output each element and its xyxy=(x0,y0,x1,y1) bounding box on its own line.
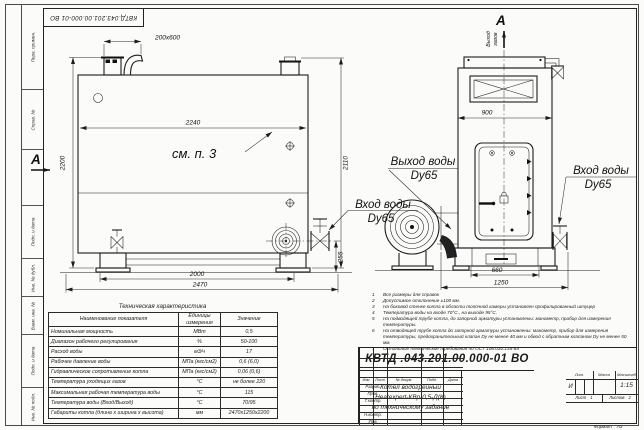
note-text: На подводящей трубе котла, до запорной а… xyxy=(383,316,635,328)
dim-height-left: 2200 xyxy=(60,155,67,171)
tb-row-utv: Утв. xyxy=(359,419,387,426)
flue-outlet-stub xyxy=(101,55,143,75)
tb-sheet-label: Лист xyxy=(575,396,586,400)
tech-value: 115 xyxy=(221,388,278,398)
see-note-ref: см. п. 3 xyxy=(172,146,217,161)
tech-value: 70/95 xyxy=(221,398,278,408)
note-item: 6На отводящей трубе котла до запорной ар… xyxy=(372,328,635,346)
tech-unit: % xyxy=(179,337,221,347)
front-view: A Выход газов xyxy=(375,13,600,271)
tech-unit: МВт xyxy=(179,327,221,337)
tech-value: 17 xyxy=(221,347,278,357)
tech-unit: МПа (кгс/см2) xyxy=(179,357,221,367)
tech-value: не более 220 xyxy=(221,377,278,387)
dim-height-right: 2110 xyxy=(343,156,350,171)
tb-sheets-value: 2 xyxy=(628,396,630,400)
note-number: 6 xyxy=(372,328,383,346)
tb-col-docnum: № докум. xyxy=(387,377,421,384)
tb-col-izm: Изм xyxy=(359,377,373,384)
front-inlet-dn: Dy65 xyxy=(585,179,612,191)
tb-scale-label: Масштаб xyxy=(615,371,638,379)
door-handle xyxy=(479,202,495,205)
tech-param: Гидравлическое сопротивление котла xyxy=(49,367,179,377)
tb-sheet-value: 1 xyxy=(590,396,592,400)
dim-base-inner: 2000 xyxy=(189,271,205,278)
tb-sheets: Листов 2 xyxy=(602,394,638,402)
drawing-sheet: Перв. примен. Справ. № Подп. и дата Инв.… xyxy=(0,0,644,430)
tb-col-podp: Подп. xyxy=(421,377,443,384)
notes-list: 1Все размеры для справок 2Допустимое отк… xyxy=(372,292,635,352)
title-block: Изм Лист № докум. Подп. Дата Разраб. Про… xyxy=(358,347,637,424)
tb-lit-value: И xyxy=(566,379,575,394)
gas-outlet-label-1: Выход xyxy=(486,31,492,47)
tb-scale-value: 1:15 xyxy=(615,379,638,394)
tech-row: Гидравлическое сопротивление котлаМПа (к… xyxy=(49,367,278,377)
tech-table: Наименование показателя Единицы измерени… xyxy=(48,312,278,419)
tech-characteristics: Техническая характеристика Наименование … xyxy=(48,303,277,419)
tech-row: Расход водым3/ч17 xyxy=(49,347,278,357)
tb-col-data: Дата xyxy=(443,377,463,384)
tb-lit-label: Лит. xyxy=(566,371,593,379)
rotated-doc-number: КВТД.043.201.00.000-01 ВО xyxy=(50,14,137,21)
tech-param: Диапазон рабочего регулирования xyxy=(49,337,179,347)
rotated-doc-number-stamp: КВТД.043.201.00.000-01 ВО xyxy=(43,8,144,27)
tech-header: Значение xyxy=(221,313,278,327)
side-inlet-valve xyxy=(553,226,567,250)
tech-param: Габариты котла (длина х ширина х высота) xyxy=(49,408,179,418)
tech-row: Температура уходящих газов°Сне более 220 xyxy=(49,377,278,387)
tech-row: Номинальная мощностьМВт0,5 xyxy=(49,327,278,337)
front-inlet-label: Вход воды xyxy=(573,165,629,177)
tech-value: 0,5 xyxy=(221,327,278,337)
tech-param: Расход воды xyxy=(49,347,179,357)
top-right-stub xyxy=(279,57,301,75)
water-outlet-dn: Dy65 xyxy=(411,170,438,182)
tech-value: 0,6 (6,0) xyxy=(221,357,278,367)
tech-row: Габариты котла (длина х ширина х высота)… xyxy=(49,408,278,418)
tech-header: Наименование показателя xyxy=(49,313,179,327)
drain-valve xyxy=(111,230,123,253)
tb-row-razrab: Разраб. xyxy=(359,384,387,391)
tech-unit: °С xyxy=(179,398,221,408)
tb-sheets-label: Листов xyxy=(609,396,624,400)
tech-param: Температура уходящих газов xyxy=(49,377,179,387)
format-label: Формат А3 xyxy=(578,424,638,429)
side-view xyxy=(60,55,352,272)
tech-row: Температура воды (Вход/Выход)°С70/95 xyxy=(49,398,278,408)
tech-param: Номинальная мощность xyxy=(49,327,179,337)
tb-row-tkontr: Т.контр. xyxy=(359,398,387,405)
tech-value: 0,06 (0,6) xyxy=(221,367,278,377)
tech-row: Диапазон рабочего регулирования%50-100 xyxy=(49,337,278,347)
explosion-hatch xyxy=(470,76,537,102)
tech-unit: м3/ч xyxy=(179,347,221,357)
tech-unit: МПа (кгс/см2) xyxy=(179,367,221,377)
tech-value: 50-100 xyxy=(221,337,278,347)
section-label-top: A xyxy=(495,13,506,28)
water-inlet-label: Вход воды xyxy=(355,199,411,211)
note-number: 5 xyxy=(372,316,383,328)
tech-param: Рабочее давление воды xyxy=(49,357,179,367)
tech-unit: °С xyxy=(179,377,221,387)
tech-header-row: Наименование показателя Единицы измерени… xyxy=(49,313,278,327)
note-item: 5На подводящей трубе котла, до запорной … xyxy=(372,316,635,328)
dim-inlet-height: 255 xyxy=(338,251,345,263)
tech-param: Максимальная рабочая температура воды xyxy=(49,388,179,398)
tech-table-title: Техническая характеристика xyxy=(48,303,277,310)
tb-row-prov: Пров. xyxy=(359,391,387,398)
note-text: На отводящей трубе котла до запорной арм… xyxy=(383,328,635,346)
tech-value: 2470х1250х2200 xyxy=(221,408,278,418)
section-label-left: A xyxy=(30,152,41,167)
base-frame xyxy=(375,248,600,271)
gas-outlet-label-2: газов xyxy=(493,32,499,46)
tech-unit: °С xyxy=(179,388,221,398)
tech-row: Максимальная рабочая температура воды°С1… xyxy=(49,388,278,398)
support-legs xyxy=(60,253,352,273)
tech-header: Единицы измерения xyxy=(179,313,221,327)
tech-unit: мм xyxy=(179,408,221,418)
format-word: Формат xyxy=(594,424,612,429)
top-outlet-pipe-valve xyxy=(545,59,564,80)
dim-front-base-inner: 660 xyxy=(492,267,503,274)
tb-col-list: Лист xyxy=(373,377,387,384)
dim-front-width: 900 xyxy=(482,110,493,117)
tb-sheet: Лист 1 xyxy=(566,394,602,402)
front-view-dimensions: 900 660 1250 Вход воды Dy65 xyxy=(441,110,636,291)
format-size: А3 xyxy=(617,424,623,429)
dim-width-inner: 2240 xyxy=(185,120,201,127)
tb-mass-label: Масса xyxy=(593,371,615,379)
tech-param: Температура воды (Вход/Выход) xyxy=(49,398,179,408)
tech-row: Рабочее давление водыМПа (кгс/см2)0,6 (6… xyxy=(49,357,278,367)
water-outlet-label: Выход воды xyxy=(391,156,456,168)
dim-base-outer: 2470 xyxy=(192,282,208,289)
dim-front-base-outer: 1250 xyxy=(494,280,509,287)
kvzr-logo: KVZR КОТЕЛЬНЫЙ ЗАВОД РЭП xyxy=(359,425,430,430)
dim-flue: 200x600 xyxy=(154,35,180,42)
